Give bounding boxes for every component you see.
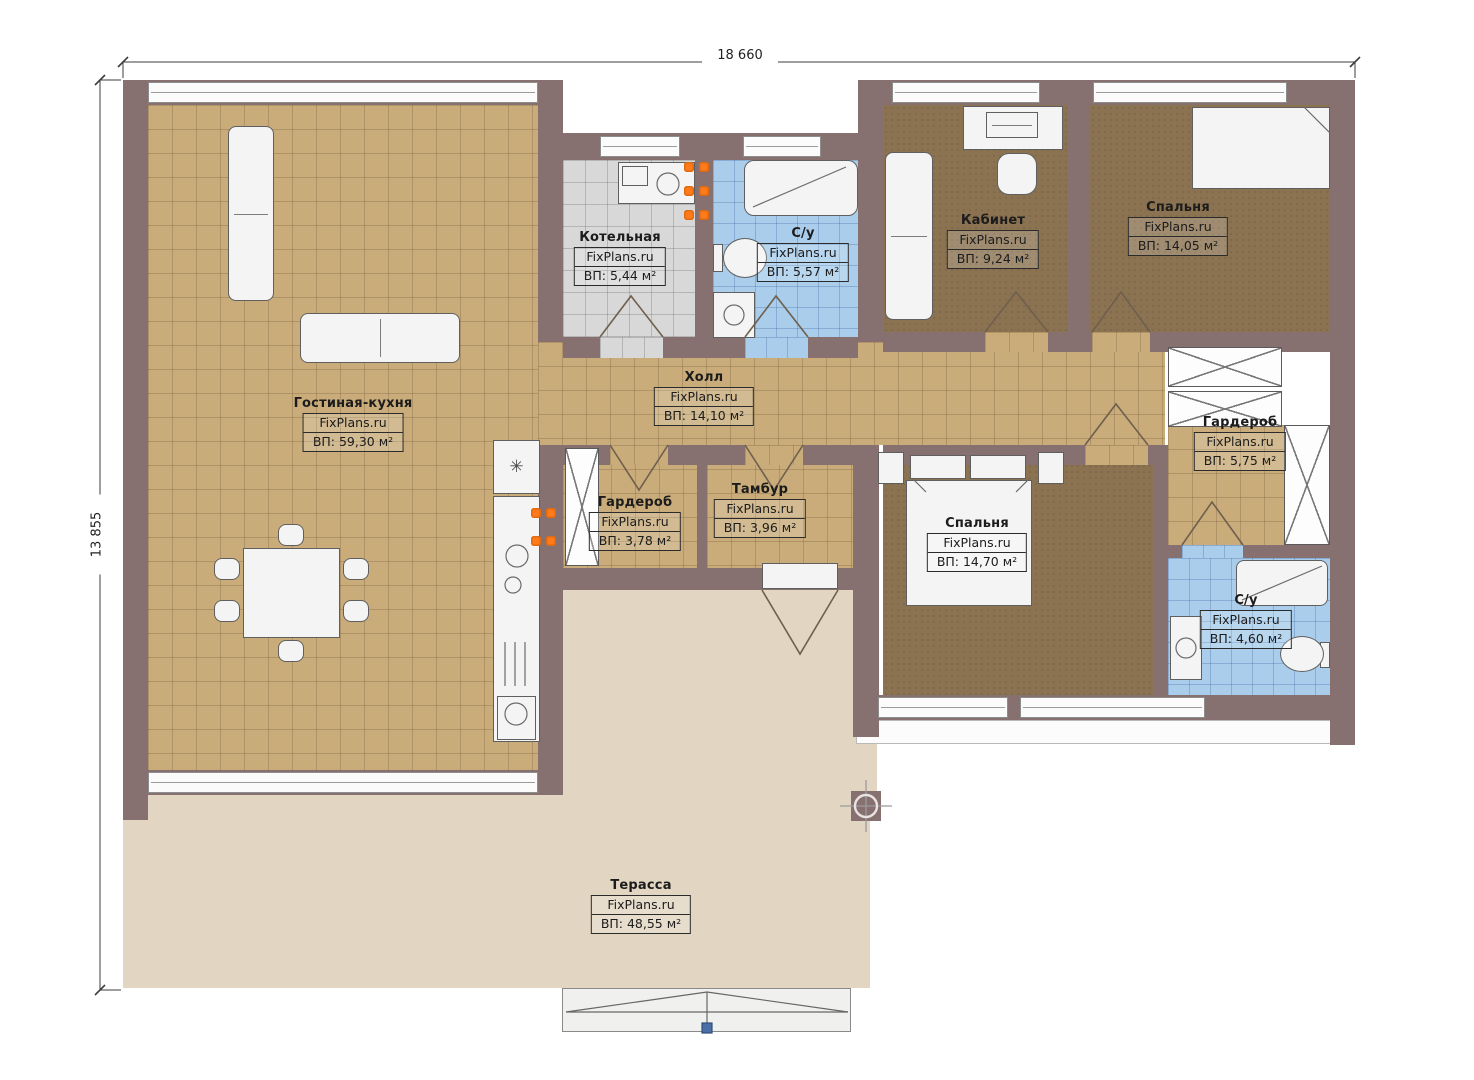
door-gap-office bbox=[985, 332, 1048, 352]
bed-bedroom1 bbox=[1192, 107, 1330, 189]
wall-hall-bottom-left bbox=[563, 445, 858, 465]
wall-tambur-bedroom2 bbox=[853, 445, 879, 737]
window-bath1 bbox=[743, 136, 821, 157]
toilet-tank bbox=[713, 244, 723, 272]
watermark: FixPlans.ru bbox=[928, 534, 1026, 553]
chair bbox=[214, 558, 240, 580]
room-label-bedroom2: Спальня FixPlans.ruВП: 14,70 м² bbox=[927, 516, 1027, 572]
nightstand bbox=[1038, 452, 1064, 484]
window-living-bottom-slider bbox=[148, 772, 538, 793]
wall-left bbox=[123, 80, 148, 820]
watermark: FixPlans.ru bbox=[758, 244, 848, 263]
manifold-icon bbox=[684, 162, 694, 172]
sofa-vertical bbox=[228, 126, 274, 301]
office-chair bbox=[997, 153, 1037, 195]
door-gap-tambur bbox=[745, 445, 803, 465]
window-boiler bbox=[600, 136, 680, 157]
window-bedroom1 bbox=[1093, 82, 1287, 103]
bathtub bbox=[744, 160, 858, 216]
printer bbox=[986, 112, 1038, 138]
washing-machine bbox=[1170, 616, 1202, 680]
burner-icon bbox=[546, 536, 556, 546]
watermark: FixPlans.ru bbox=[655, 388, 753, 407]
kitchen-appliance bbox=[497, 696, 536, 740]
watermark: FixPlans.ru bbox=[1129, 218, 1227, 237]
blind-area bbox=[856, 720, 1355, 744]
burner-icon bbox=[531, 536, 541, 546]
door-gap-bedroom2 bbox=[1085, 445, 1148, 465]
sofa-horizontal bbox=[300, 313, 460, 363]
window-bath2-bottom bbox=[1020, 697, 1205, 718]
wall-bath-office bbox=[858, 80, 883, 342]
wardrobe-unit bbox=[1168, 347, 1282, 387]
door-gap-bedroom1 bbox=[1092, 332, 1150, 352]
dining-table bbox=[243, 548, 340, 638]
burner-icon bbox=[546, 508, 556, 518]
manifold-icon bbox=[684, 210, 694, 220]
wall-right bbox=[1330, 80, 1355, 745]
window-living-top bbox=[148, 82, 538, 103]
pillow bbox=[970, 455, 1026, 479]
chair bbox=[278, 640, 304, 662]
watermark: FixPlans.ru bbox=[1195, 433, 1285, 452]
floor-terrace-notch bbox=[853, 737, 877, 795]
nightstand bbox=[878, 452, 904, 484]
wall-kitchen bbox=[538, 445, 563, 795]
window-office bbox=[892, 82, 1040, 103]
door-gap-wardrobe2 bbox=[610, 445, 668, 465]
floor-plan: ✳ bbox=[0, 0, 1474, 1080]
room-label-bath1: С/у FixPlans.ruВП: 5,57 м² bbox=[757, 226, 849, 282]
wall-office-bedroom1 bbox=[1068, 105, 1090, 335]
wall-wardrobe2-tambur bbox=[697, 445, 707, 568]
watermark: FixPlans.ru bbox=[948, 231, 1038, 250]
pillow bbox=[910, 455, 966, 479]
door-gap-bath2 bbox=[1182, 545, 1243, 558]
room-label-terrace: Терасса FixPlans.ruВП: 48,55 м² bbox=[591, 878, 691, 934]
floor-terrace-lower bbox=[123, 795, 870, 988]
room-label-bath2: С/у FixPlans.ruВП: 4,60 м² bbox=[1200, 593, 1292, 649]
entrance-door-threshold bbox=[762, 563, 838, 589]
room-label-office: Кабинет FixPlans.ruВП: 9,24 м² bbox=[947, 213, 1039, 269]
door-gap-bath1 bbox=[745, 337, 808, 358]
dimension-width-label: 18 660 bbox=[702, 48, 778, 63]
manifold-icon bbox=[699, 210, 709, 220]
floor-terrace-upper bbox=[563, 590, 853, 795]
boiler-unit bbox=[622, 166, 648, 186]
wall-bedroom2-right bbox=[1153, 445, 1168, 695]
snowflake-icon: ✳ bbox=[493, 440, 540, 494]
chair bbox=[343, 600, 369, 622]
door-gap-boiler bbox=[600, 337, 663, 358]
terrace-steps bbox=[562, 988, 851, 1032]
chair bbox=[214, 600, 240, 622]
manifold-icon bbox=[699, 186, 709, 196]
manifold-icon bbox=[699, 162, 709, 172]
washing-machine bbox=[713, 292, 755, 338]
wardrobe-unit bbox=[1284, 425, 1330, 545]
dimension-height-label: 13 855 bbox=[90, 495, 105, 575]
watermark: FixPlans.ru bbox=[590, 513, 680, 532]
room-label-tambur: Тамбур FixPlans.ruВП: 3,96 м² bbox=[714, 482, 806, 538]
watermark: FixPlans.ru bbox=[715, 500, 805, 519]
chair bbox=[278, 524, 304, 546]
window-bedroom2-bottom bbox=[878, 697, 1008, 718]
wall-living-right bbox=[538, 80, 563, 342]
chair bbox=[343, 558, 369, 580]
watermark: FixPlans.ru bbox=[1201, 611, 1291, 630]
room-label-wardrobe1: Гардероб FixPlans.ruВП: 5,75 м² bbox=[1194, 415, 1286, 471]
room-label-boiler: Котельная FixPlans.ruВП: 5,44 м² bbox=[574, 230, 666, 286]
manifold-icon bbox=[684, 186, 694, 196]
watermark: FixPlans.ru bbox=[575, 248, 665, 267]
watermark: FixPlans.ru bbox=[304, 414, 402, 433]
room-label-living: Гостиная-кухня FixPlans.ruВП: 59,30 м² bbox=[294, 396, 413, 452]
room-label-bedroom1: Спальня FixPlans.ruВП: 14,05 м² bbox=[1128, 200, 1228, 256]
sofa-office bbox=[885, 152, 933, 320]
terrace-column bbox=[851, 791, 881, 821]
watermark: FixPlans.ru bbox=[592, 896, 690, 915]
room-label-wardrobe2: Гардероб FixPlans.ruВП: 3,78 м² bbox=[589, 495, 681, 551]
burner-icon bbox=[531, 508, 541, 518]
room-label-hall: Холл FixPlans.ruВП: 14,10 м² bbox=[654, 370, 754, 426]
